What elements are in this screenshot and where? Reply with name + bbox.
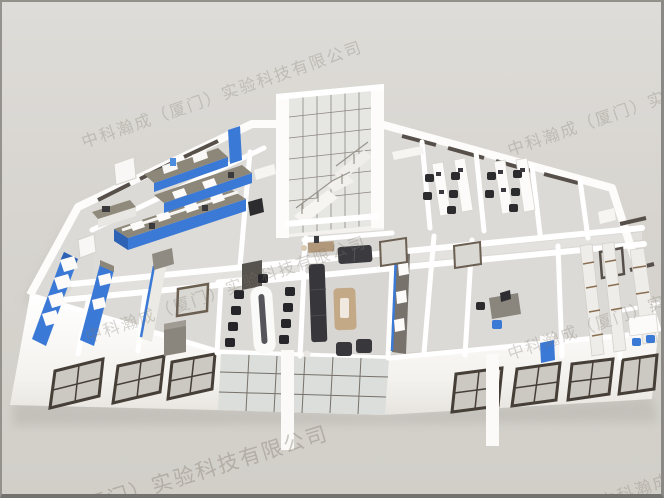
window	[619, 355, 657, 394]
window	[512, 363, 560, 406]
tower-pillar	[371, 85, 384, 228]
watermark-text: 中科瀚成（厦门）实验科技有限公司	[505, 45, 661, 159]
tower-pillar	[276, 94, 289, 238]
stair-tower	[276, 84, 384, 238]
render-canvas: 中科瀚成（厦门）实验科技有限公司 中科瀚成（厦门）实验科技有限公司 中科瀚成（厦…	[0, 0, 664, 498]
entrance-column	[486, 354, 499, 446]
window	[568, 359, 613, 400]
floorplan-render: 中科瀚成（厦门）实验科技有限公司 中科瀚成（厦门）实验科技有限公司 中科瀚成（厦…	[2, 2, 661, 494]
